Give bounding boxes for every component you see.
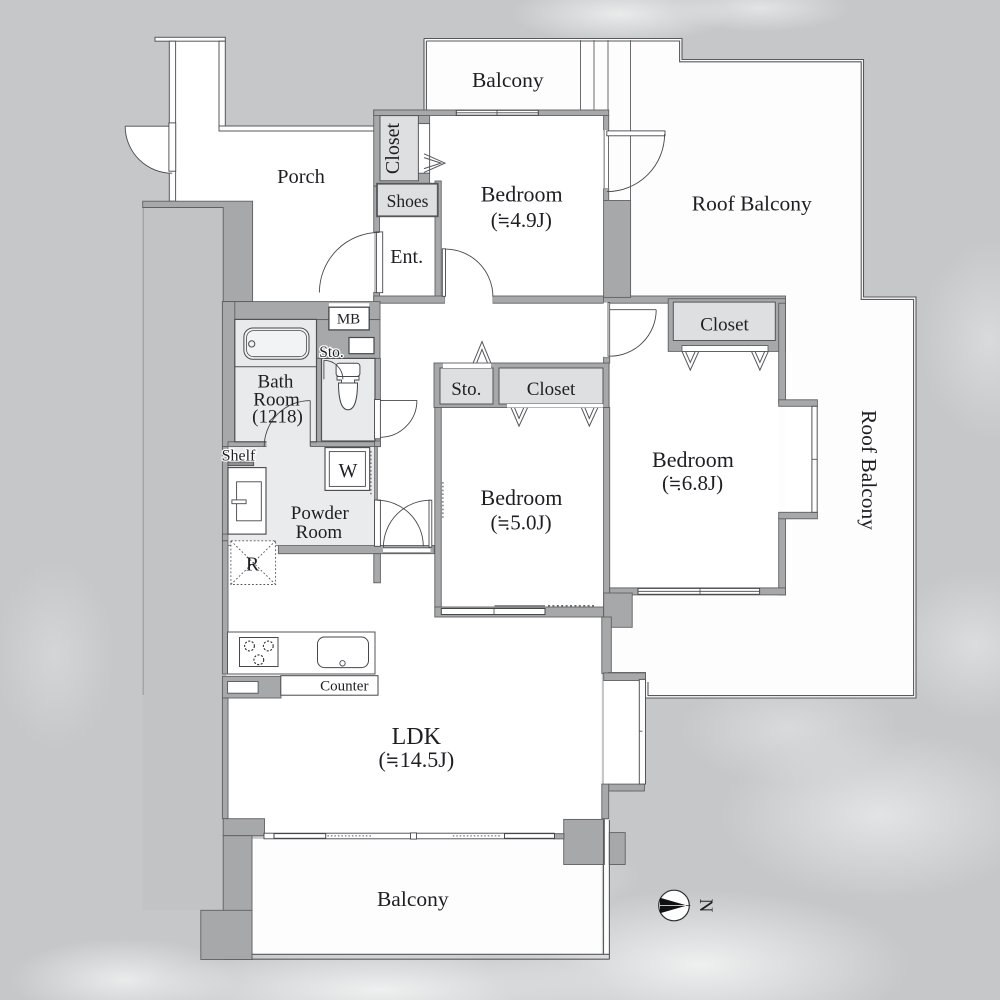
svg-text:Sto.: Sto. xyxy=(319,344,344,361)
svg-text:MB: MB xyxy=(337,312,360,328)
svg-text:N: N xyxy=(695,899,716,913)
svg-text:(: ( xyxy=(379,747,386,772)
svg-text:Shoes: Shoes xyxy=(387,191,429,211)
svg-text:Roof Balcony: Roof Balcony xyxy=(857,410,881,530)
svg-text:5.0J): 5.0J) xyxy=(510,511,551,535)
svg-text:Ent.: Ent. xyxy=(390,246,423,268)
svg-text:Shelf: Shelf xyxy=(222,448,256,465)
svg-text:R: R xyxy=(246,554,260,576)
svg-text:Balcony: Balcony xyxy=(377,887,449,911)
svg-text:Bedroom: Bedroom xyxy=(652,447,734,472)
svg-text:Counter: Counter xyxy=(320,679,368,695)
svg-text:Sto.: Sto. xyxy=(451,379,481,400)
svg-text:(: ( xyxy=(491,208,498,232)
svg-text:Bedroom: Bedroom xyxy=(481,485,563,510)
svg-text:14.5J): 14.5J) xyxy=(400,747,454,772)
svg-text:Bedroom: Bedroom xyxy=(481,182,563,207)
svg-text:W: W xyxy=(339,460,358,482)
svg-text:Closet: Closet xyxy=(700,315,749,336)
svg-text:Porch: Porch xyxy=(277,166,325,188)
svg-text:(1218): (1218) xyxy=(252,407,303,428)
svg-text:4.9J): 4.9J) xyxy=(510,208,551,232)
svg-text:6.8J): 6.8J) xyxy=(682,471,723,495)
svg-text:Roof Balcony: Roof Balcony xyxy=(692,192,812,216)
svg-text:Closet: Closet xyxy=(382,123,404,175)
svg-text:Powder: Powder xyxy=(291,503,350,524)
svg-text:Balcony: Balcony xyxy=(472,68,544,92)
svg-text:(: ( xyxy=(491,511,498,535)
svg-text:(: ( xyxy=(662,471,669,495)
svg-text:Closet: Closet xyxy=(527,379,576,400)
svg-text:Room: Room xyxy=(296,522,343,543)
